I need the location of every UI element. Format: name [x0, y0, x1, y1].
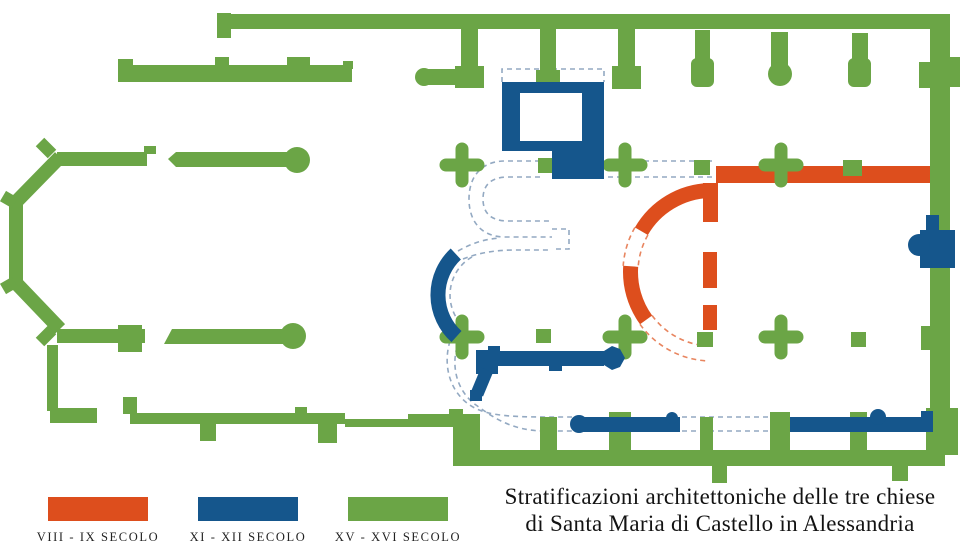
orange-apse-dashed-gap1-inner [638, 235, 648, 267]
green-square-pillar-1 [538, 158, 553, 173]
green-north-pier-6 [852, 33, 868, 62]
pillar-nw [446, 149, 478, 181]
green-north-aisle-wall [118, 65, 352, 82]
green-square-pillar-2 [694, 160, 710, 175]
blue-diagonal-foot [470, 390, 482, 401]
green-north-aisle-bump-3 [343, 61, 353, 69]
green-south-aisle-wall-m [345, 419, 408, 427]
green-south-aisle-wall-e [408, 414, 453, 427]
legend-label-11th-12th: XI - XII SECOLO [168, 530, 328, 545]
orange-apse-chord-upper [703, 252, 717, 288]
blue-upper-wall-bump-bottom [549, 363, 562, 371]
green-north-pier-6-foot [848, 58, 871, 87]
west-apse-diag-upper [16, 157, 60, 202]
dashed-outlines-blue [447, 69, 788, 431]
green-north-aisle-bump-2 [215, 57, 229, 67]
green-south-aisle-step [123, 397, 137, 414]
green-square-pillar-5 [697, 332, 713, 347]
blue-apse-dashed-top-inner [463, 250, 550, 259]
legend-swatch-blue [198, 497, 298, 521]
blue-upper-wall [480, 351, 604, 366]
green-north-pier-1 [461, 25, 478, 73]
green-lower-arcade [172, 329, 284, 344]
green-upper-arcade-taper [168, 152, 176, 167]
bell-tower [502, 82, 604, 179]
green-north-pier-4-foot [691, 58, 714, 87]
green-east-pilaster-2 [921, 326, 930, 350]
caption-line-2: di Santa Maria di Castello in Alessandri… [494, 510, 946, 537]
green-north-pier-4 [695, 30, 710, 62]
green-south-aisle-wall-w [130, 413, 345, 424]
green-north-wall [217, 14, 945, 29]
blue-upper-wall-bump-top [488, 346, 500, 352]
west-apse-buttress-nw [3, 196, 15, 203]
ambulatory-east-dashed-bay [552, 229, 569, 249]
pillar-se [765, 321, 797, 353]
green-lower-arcade-column [280, 323, 306, 349]
green-south-aisle-bump-1 [295, 407, 307, 414]
green-north-pier-5 [771, 32, 788, 66]
west-apse-diag-lower [16, 283, 60, 329]
blue-lower-wall-bump-1 [666, 412, 678, 424]
green-south-pier-2 [540, 417, 557, 457]
green-south-buttress-1 [712, 464, 727, 483]
green-square-pillar-3 [843, 160, 862, 176]
orange-apse-chord-lower [703, 305, 717, 330]
green-sw-pier [118, 325, 142, 352]
legend-swatch-orange [48, 497, 148, 521]
blue-lower-wall-end-step [921, 411, 933, 432]
green-south-aisle-pier-1 [200, 423, 216, 441]
green-upper-arcade [176, 152, 288, 167]
green-west-apse-bump [144, 146, 156, 154]
legend-label-15th-16th: XV - XVI SECOLO [318, 530, 478, 545]
legend-item-11th-12th: XI - XII SECOLO [168, 497, 328, 545]
green-north-pier-3 [618, 25, 635, 71]
west-apse-buttress-sw [3, 282, 15, 289]
green-east-pilaster-1 [919, 62, 930, 88]
green-south-pier-1 [453, 414, 480, 466]
green-north-aisle-pier [287, 57, 310, 82]
blue-east-apsidiole [908, 234, 930, 256]
blue-east-attachment-upper [926, 215, 939, 232]
green-south-pier-5 [770, 412, 790, 457]
green-square-pillar-4 [536, 329, 551, 343]
green-south-pier-4 [700, 417, 713, 457]
ambulatory-inner-dashed [483, 177, 552, 221]
green-sw-wall-end [50, 408, 97, 423]
green-north-pier-3-foot [612, 66, 641, 89]
walls-11th-12th-century [438, 82, 955, 433]
blue-apse-dashed-top-outer [458, 238, 500, 251]
green-upper-arcade-column [284, 147, 310, 173]
orange-apse-dashed-gap1-outer [623, 228, 635, 266]
green-west-apse [16, 157, 147, 336]
green-lower-arcade-taper [164, 329, 172, 344]
green-north-pier-5-foot [768, 62, 792, 86]
legend-label-8th-9th: VIII - IX SECOLO [18, 530, 178, 545]
orange-apse-arc-upper [641, 191, 709, 232]
legend-item-8th-9th: VIII - IX SECOLO [18, 497, 178, 545]
walls-8th-9th-century [631, 166, 934, 330]
blue-lower-wall-bump-2 [870, 409, 886, 425]
green-east-buttress-outer [948, 57, 960, 87]
west-apse-buttress-se [40, 330, 52, 342]
legend-swatch-green [348, 497, 448, 521]
blue-apse-arc [438, 254, 457, 337]
green-north-wall-end-stub [217, 13, 231, 38]
green-north-aisle-bump-1 [118, 59, 133, 66]
church-floor-plan [0, 0, 960, 553]
figure-caption: Stratificazioni architettoniche delle tr… [494, 483, 946, 537]
green-south-buttress-2 [892, 460, 908, 481]
green-sw-wall-vertical [47, 345, 58, 411]
figure-stratification-plan: Stratificazioni architettoniche delle tr… [0, 0, 960, 553]
caption-line-1: Stratificazioni architettoniche delle tr… [494, 483, 946, 510]
green-square-pillar-6 [851, 332, 866, 347]
green-north-aisle-column-cap [415, 68, 433, 86]
green-south-aisle-pier-2 [318, 423, 337, 443]
blue-lower-wall-west [576, 417, 680, 432]
green-north-pier-2 [540, 25, 556, 75]
west-apse-buttress-ne [40, 142, 52, 154]
walls-15th-16th-century [3, 13, 960, 483]
orange-apse-arc-lower [631, 266, 647, 320]
blue-lower-wall-east [790, 417, 932, 432]
orange-north-wall [716, 166, 934, 183]
legend-item-15th-16th: XV - XVI SECOLO [318, 497, 478, 545]
